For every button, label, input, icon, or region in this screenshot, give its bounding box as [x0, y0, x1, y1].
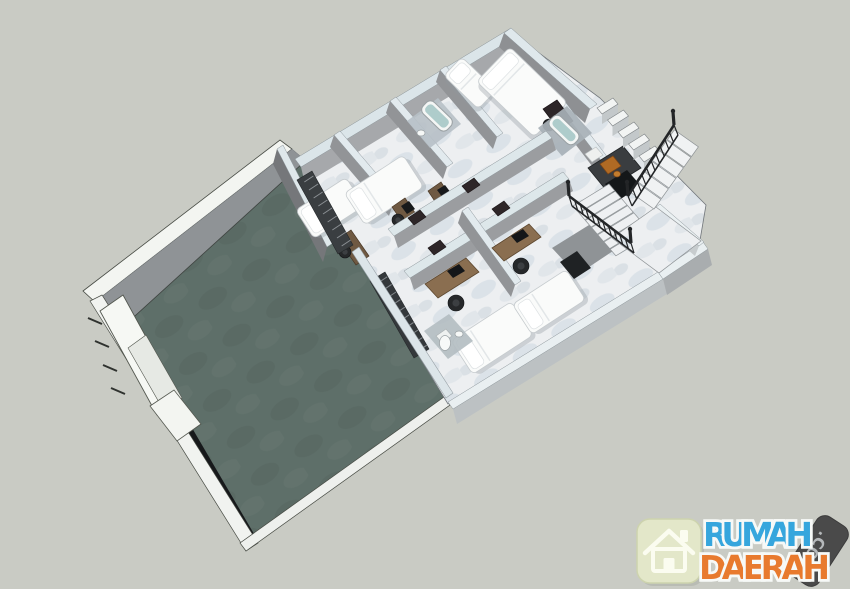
stair-railing-upper-post-cap-1	[671, 109, 675, 113]
toilet-bowl	[440, 336, 451, 351]
stair-railing-lower-post-cap-0	[566, 180, 570, 184]
sink-3	[455, 331, 463, 337]
watermark-logo: .COM RUMAH RUMAH DAERAH DAERAH	[637, 512, 850, 589]
chair-d-seat	[452, 299, 459, 306]
sink-1	[417, 130, 425, 136]
house-door	[664, 558, 675, 571]
scene-svg: .COM RUMAH RUMAH DAERAH DAERAH	[0, 0, 850, 589]
stair-railing-upper-post-0	[627, 183, 628, 196]
stair-railing-lower-post-0	[568, 183, 569, 196]
stair-railing-lower-post-cap-1	[628, 227, 632, 231]
stair-railing-upper-post-1	[673, 112, 674, 125]
logo-line2: DAERAH	[699, 548, 831, 587]
stair-railing-upper-post-cap-0	[625, 180, 629, 184]
scene-root	[0, 0, 850, 589]
chair-e-seat	[517, 262, 524, 269]
stair-railing-lower-post-1	[630, 230, 631, 243]
floorplan-3d-render: .COM RUMAH RUMAH DAERAH DAERAH	[0, 0, 850, 589]
kitchen-orange-pot	[614, 171, 621, 177]
